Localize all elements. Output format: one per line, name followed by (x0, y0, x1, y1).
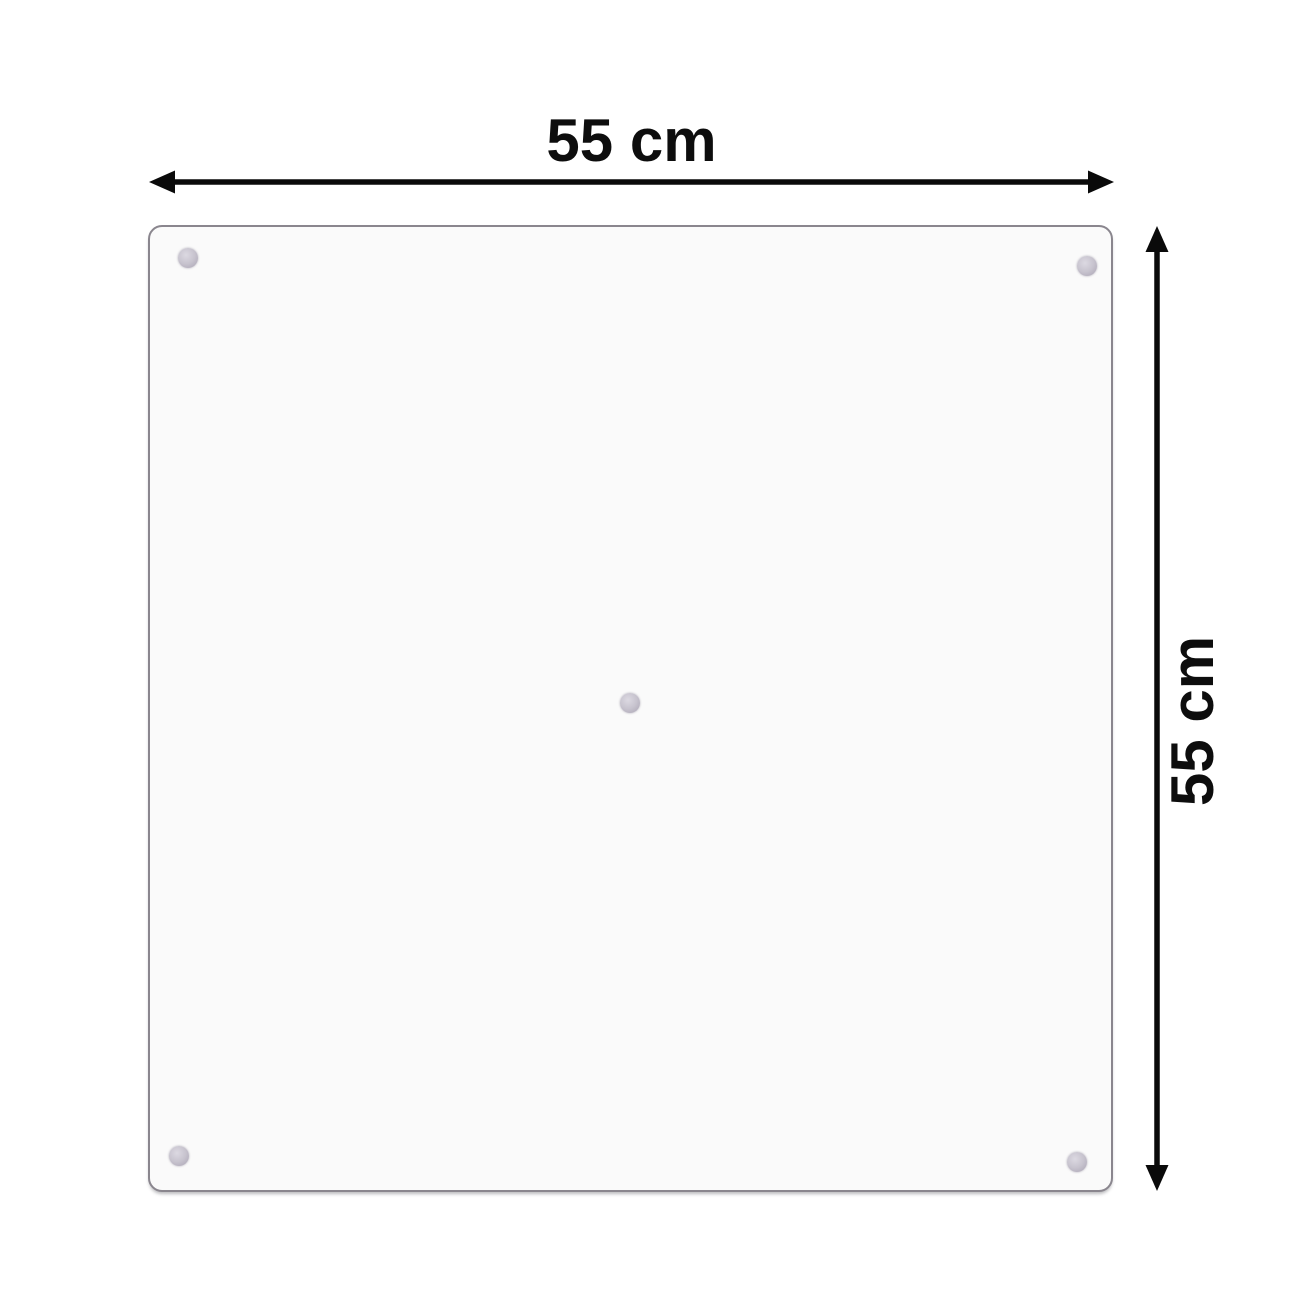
width-dimension-label: 55 cm (148, 110, 1115, 172)
width-dimension-arrow (148, 169, 1115, 195)
arrowhead-left-icon (149, 171, 175, 194)
suction-cup-bottom-right-icon (1067, 1152, 1087, 1172)
arrowhead-right-icon (1088, 171, 1114, 194)
glass-panel (148, 225, 1113, 1192)
height-dimension-label: 55 cm (1162, 571, 1224, 871)
dimension-diagram: 55 cm 55 cm (0, 0, 1300, 1300)
suction-cup-bottom-left-icon (169, 1146, 189, 1166)
arrowhead-up-icon (1146, 226, 1169, 252)
suction-cup-top-right-icon (1077, 256, 1097, 276)
suction-cup-center-icon (620, 693, 640, 713)
arrowhead-down-icon (1146, 1165, 1169, 1191)
suction-cup-top-left-icon (178, 248, 198, 268)
